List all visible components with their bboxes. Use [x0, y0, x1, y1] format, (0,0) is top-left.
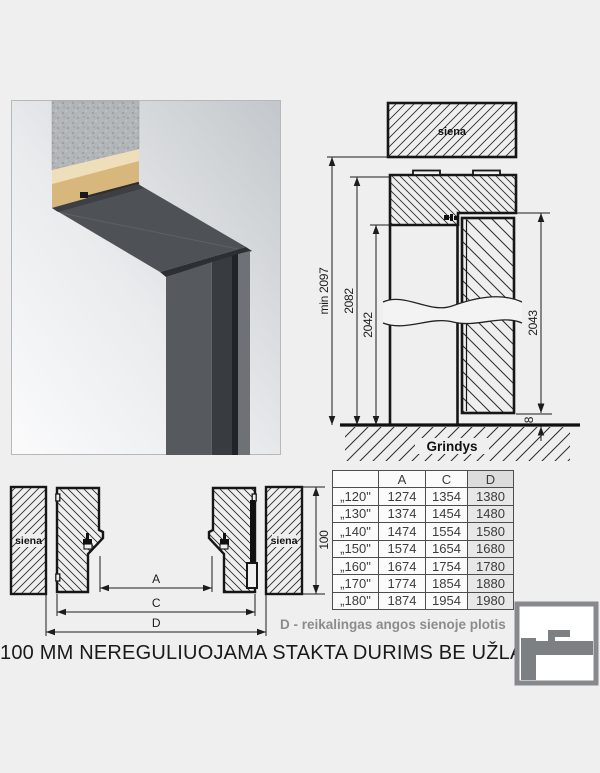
frame-head-tab-left: [413, 171, 440, 176]
frame-jamb-inner-face: [166, 262, 212, 455]
logo-hook-top: [548, 630, 570, 637]
table-row: „160" 1674 1754 1780: [333, 557, 514, 574]
cell-d: 1580: [468, 523, 514, 540]
frame-jamb-edge: [232, 254, 238, 455]
dim-2042-label: 2042: [361, 312, 375, 338]
plan-frame-left: [57, 488, 103, 592]
dim-c-label: C: [152, 596, 161, 610]
dim-2043-label: 2043: [526, 310, 540, 336]
cell-size: „130": [333, 505, 379, 522]
cell-size: „140": [333, 523, 379, 540]
d-dimension-note: D - reikalingas angos sienoje plotis: [280, 617, 506, 632]
cell-d: 1980: [468, 592, 514, 609]
plan-wall-right-label: siena: [271, 535, 298, 547]
frame-jamb-outer: [238, 251, 250, 455]
seal-nub: [80, 192, 88, 198]
cell-c: 1354: [426, 488, 468, 505]
logo-block-vertical: [521, 638, 536, 680]
vertical-section-drawing: siena min 2097 2082 2042 2043: [300, 92, 600, 470]
cell-size: „120": [333, 488, 379, 505]
cell-size: „160": [333, 557, 379, 574]
spec-sheet-page: siena min 2097 2082 2042 2043: [0, 0, 600, 773]
cell-c: 1454: [426, 505, 468, 522]
cell-d: 1380: [468, 488, 514, 505]
floor-label: Grindys: [426, 439, 477, 454]
cell-size: „170": [333, 575, 379, 592]
cell-a: 1574: [379, 540, 426, 557]
plan-right-gasket-pin: [223, 533, 226, 540]
dim-a-label: A: [152, 572, 160, 586]
table-header-row: A C D: [333, 471, 514, 488]
cell-c: 1554: [426, 523, 468, 540]
cell-a: 1874: [379, 592, 426, 609]
header-a: A: [379, 471, 426, 488]
header-size: [333, 471, 379, 488]
cell-c: 1854: [426, 575, 468, 592]
head-gasket-3: [454, 216, 458, 220]
cell-c: 1754: [426, 557, 468, 574]
cell-d: 1680: [468, 540, 514, 557]
plan-left-gasket-pin: [86, 533, 89, 540]
sheet-title: 100 MM NEREGULIUOJAMA STAKTA DURIMS BE U…: [0, 642, 524, 665]
dim-100-label: 100: [317, 530, 330, 550]
cell-d: 1480: [468, 505, 514, 522]
cell-a: 1674: [379, 557, 426, 574]
table-row: „140" 1474 1554 1580: [333, 523, 514, 540]
plan-right-gasket-base: [220, 544, 228, 549]
brand-logo-icon: [514, 601, 599, 686]
logo-bar-horizontal: [535, 641, 593, 655]
frame-jamb-face: [212, 256, 232, 455]
cell-a: 1774: [379, 575, 426, 592]
section-wall-label: siena: [438, 126, 467, 138]
head-gasket-2: [450, 214, 453, 221]
cell-size: „150": [333, 540, 379, 557]
table-row: „120" 1274 1354 1380: [333, 488, 514, 505]
plan-wall-left-label: siena: [15, 535, 42, 547]
plan-seal-bar: [250, 500, 255, 565]
plan-frame-left-nick-bottom: [56, 574, 60, 581]
plan-left-gasket-base: [84, 544, 92, 549]
plan-frame-right-nick-top: [252, 494, 256, 501]
size-table: A C D „120" 1274 1354 1380 „130" 1374 14…: [332, 470, 514, 610]
frame-head-tab-right: [473, 171, 500, 176]
dim-min-height-label: min 2097: [317, 267, 331, 315]
dim-d-label: D: [152, 616, 161, 630]
cell-a: 1474: [379, 523, 426, 540]
logo-hook-stem: [548, 636, 555, 642]
table-row: „130" 1374 1454 1480: [333, 505, 514, 522]
table-row: „180" 1874 1954 1980: [333, 592, 514, 609]
cell-a: 1274: [379, 488, 426, 505]
cell-d: 1880: [468, 575, 514, 592]
header-c: C: [426, 471, 468, 488]
plan-hinge-plate: [247, 563, 257, 588]
table-row: „170" 1774 1854 1880: [333, 575, 514, 592]
dim-2082-label: 2082: [342, 288, 356, 314]
plan-frame-left-nick-top: [56, 494, 60, 501]
frame-corner-3d-render: [11, 100, 281, 455]
cell-d: 1780: [468, 557, 514, 574]
header-d: D: [468, 471, 514, 488]
dim-8-label: 8: [522, 416, 536, 423]
cell-c: 1954: [426, 592, 468, 609]
table-row: „150" 1574 1654 1680: [333, 540, 514, 557]
cell-size: „180": [333, 592, 379, 609]
head-gasket-1: [444, 215, 449, 220]
cell-c: 1654: [426, 540, 468, 557]
cell-a: 1374: [379, 505, 426, 522]
